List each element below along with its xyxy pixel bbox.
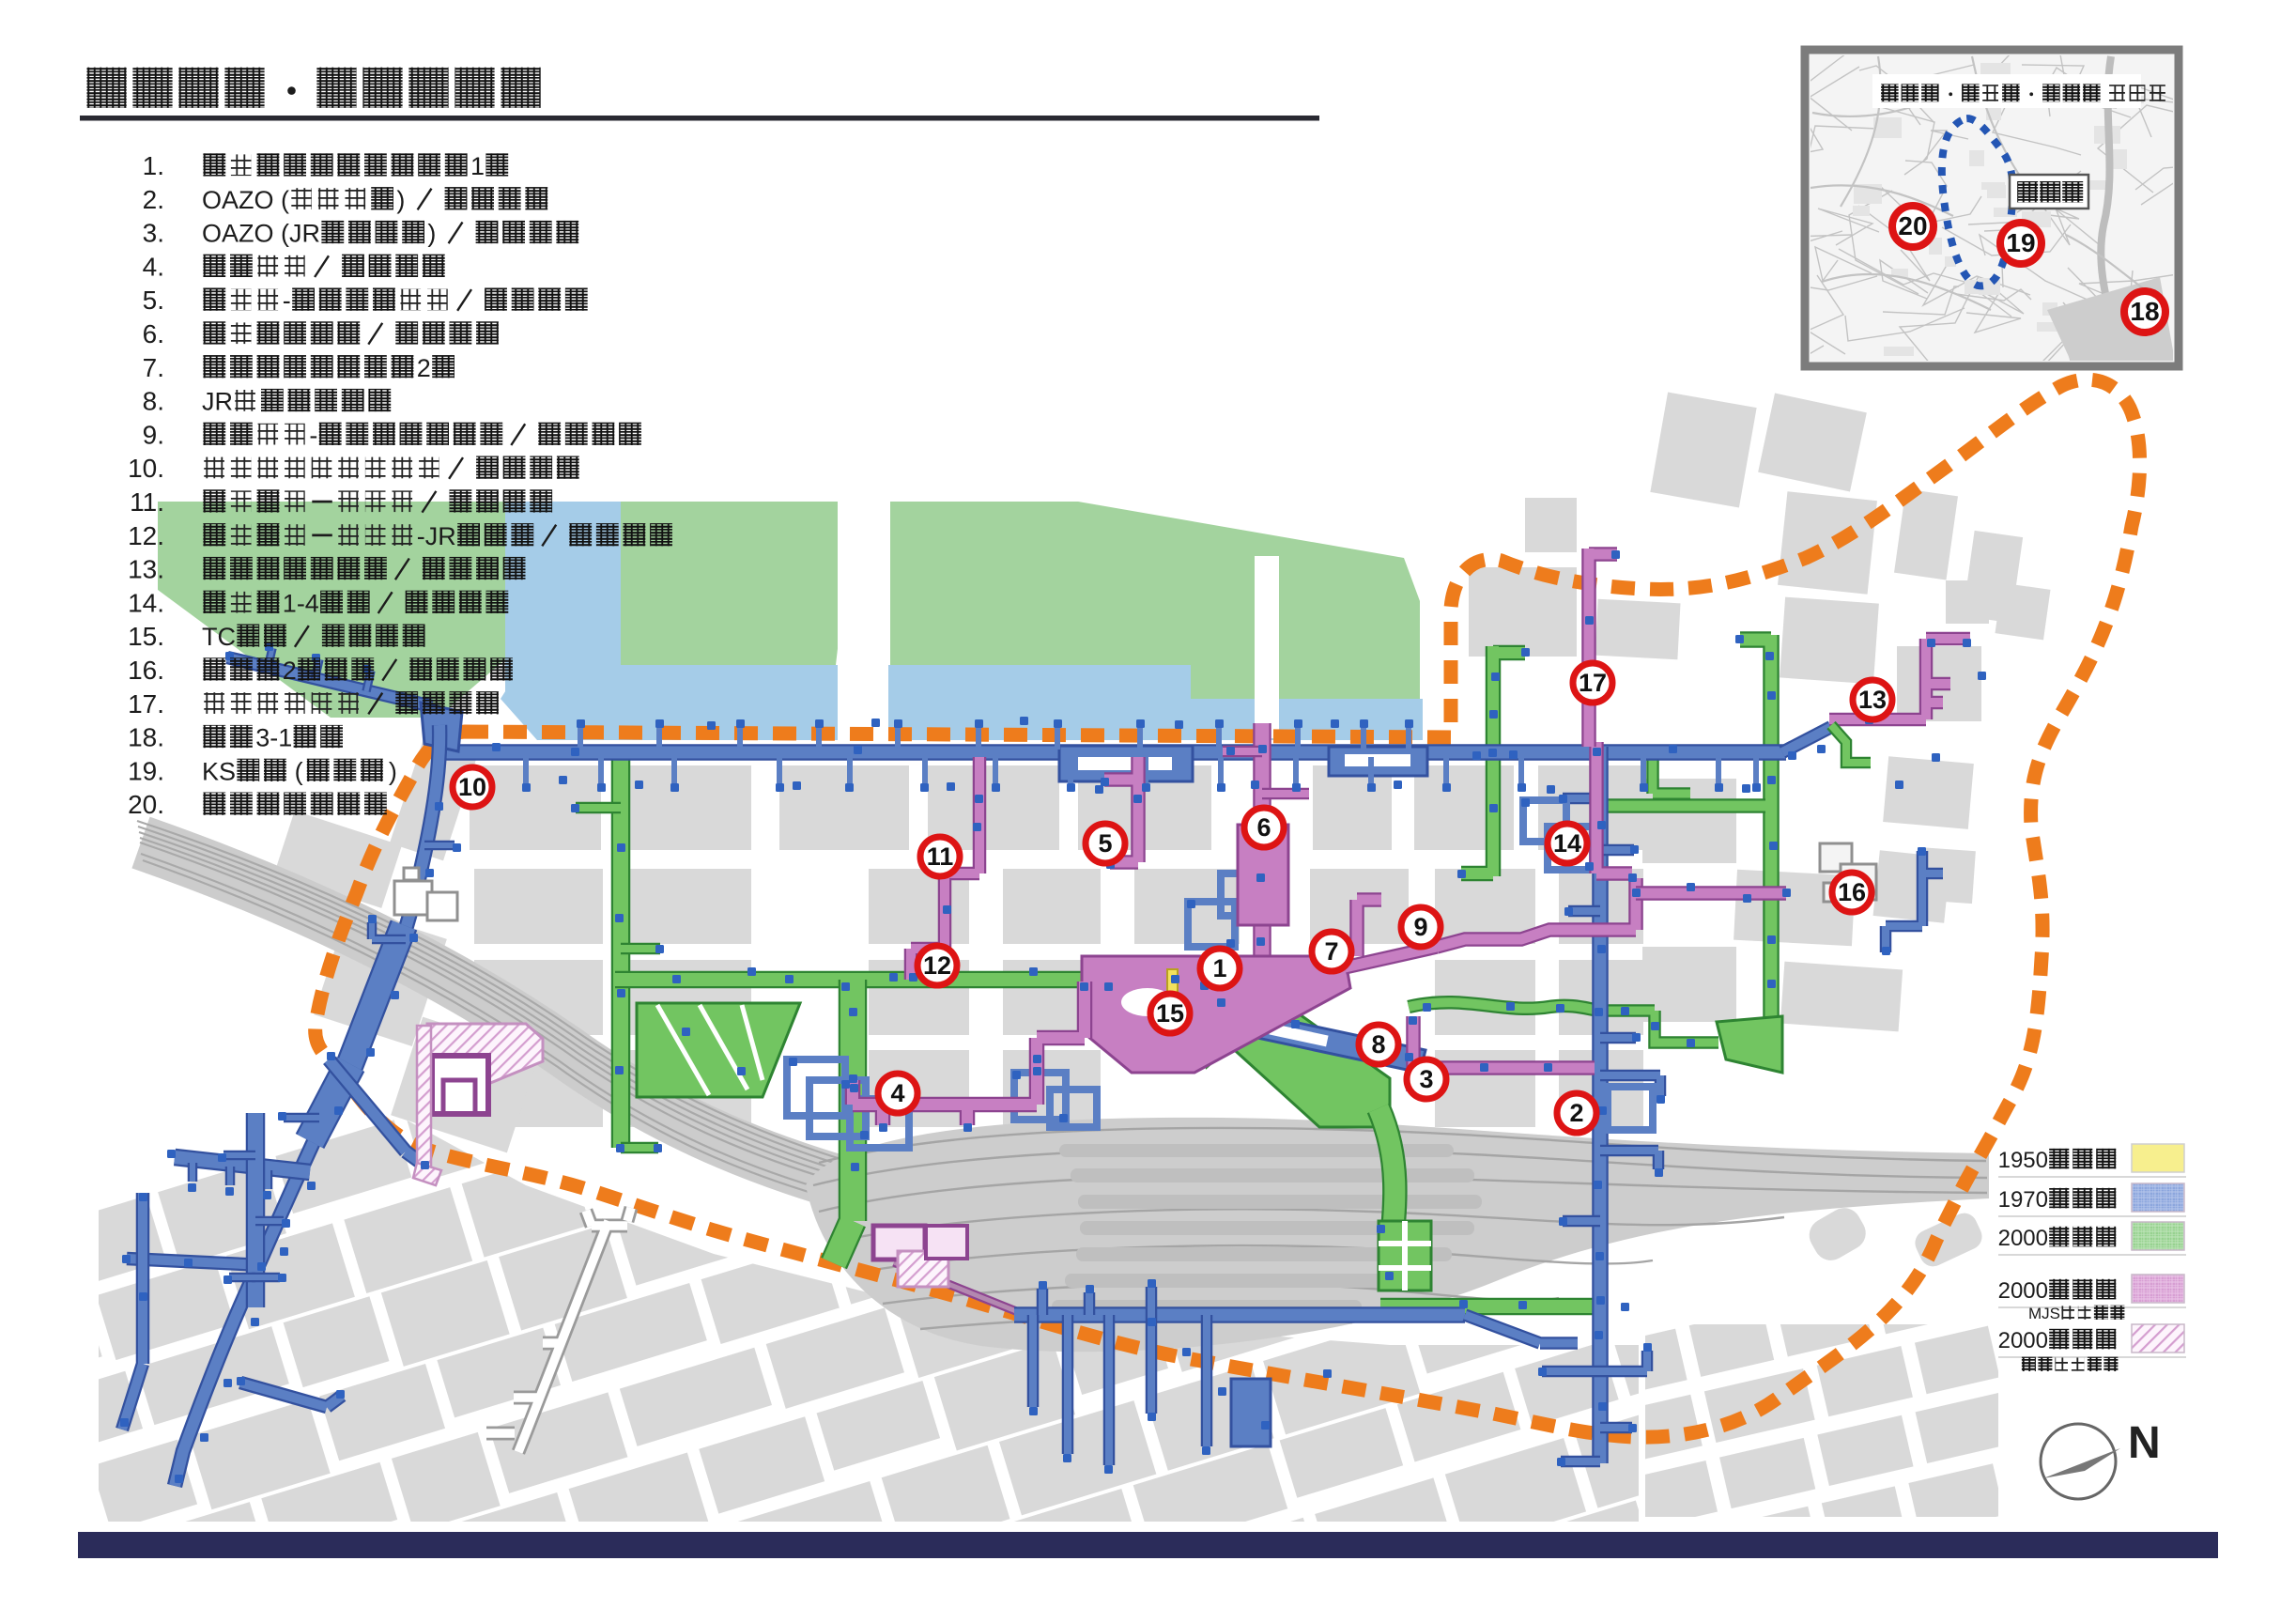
svg-text:4.: 4.	[143, 252, 164, 281]
svg-text:5.: 5.	[143, 286, 164, 315]
svg-text:13: 13	[1858, 686, 1887, 714]
svg-text:1.: 1.	[143, 151, 164, 180]
svg-text:4: 4	[890, 1079, 904, 1107]
svg-text:2: 2	[1569, 1099, 1583, 1127]
svg-text:-: -	[309, 421, 317, 449]
svg-text:1-4: 1-4	[283, 589, 319, 617]
svg-text:14: 14	[1553, 829, 1581, 858]
svg-text:14.: 14.	[128, 588, 164, 617]
svg-text:-: -	[283, 286, 291, 315]
svg-text:9.: 9.	[143, 420, 164, 449]
svg-text:1: 1	[470, 152, 485, 180]
svg-text:9: 9	[1413, 913, 1427, 941]
svg-text:JR: JR	[202, 388, 233, 416]
svg-text:2.: 2.	[143, 185, 164, 214]
svg-text:): )	[396, 186, 405, 214]
svg-text:8: 8	[1371, 1030, 1385, 1059]
svg-text:13.: 13.	[128, 555, 164, 584]
svg-text:16.: 16.	[128, 656, 164, 685]
svg-text:16: 16	[1838, 878, 1866, 906]
svg-text:11.: 11.	[130, 487, 164, 517]
svg-text:MJS: MJS	[2028, 1305, 2060, 1322]
svg-text:17: 17	[1579, 669, 1607, 697]
svg-text:10.: 10.	[128, 454, 164, 483]
svg-text:17.: 17.	[128, 689, 164, 719]
svg-text:1: 1	[1212, 954, 1226, 982]
svg-text:20: 20	[1898, 211, 1927, 240]
svg-text:1970: 1970	[1998, 1187, 2048, 1213]
svg-text:3.: 3.	[143, 219, 164, 248]
svg-text:11: 11	[927, 842, 954, 871]
svg-text:6: 6	[1256, 813, 1271, 842]
svg-text:20.: 20.	[128, 790, 164, 819]
svg-text:2: 2	[283, 657, 297, 685]
svg-text:7: 7	[1324, 937, 1338, 966]
svg-text:3: 3	[1419, 1065, 1433, 1093]
svg-text:TC: TC	[202, 623, 236, 651]
svg-text:N: N	[2128, 1418, 2161, 1468]
svg-text:KS: KS	[202, 757, 236, 785]
svg-text:): )	[389, 757, 397, 785]
svg-text:15: 15	[1156, 999, 1184, 1028]
svg-text:2000: 2000	[1998, 1278, 2048, 1304]
svg-text:): )	[427, 220, 436, 248]
svg-text:12: 12	[923, 951, 951, 980]
svg-text:5: 5	[1098, 829, 1112, 858]
svg-text:12.: 12.	[128, 521, 164, 550]
svg-text:1950: 1950	[1998, 1148, 2048, 1173]
svg-text:7.: 7.	[143, 353, 164, 382]
svg-text:15.: 15.	[128, 622, 164, 651]
svg-text:8.: 8.	[143, 387, 164, 416]
svg-text:18.: 18.	[128, 723, 164, 752]
svg-text:3-1: 3-1	[255, 724, 292, 752]
svg-text:(: (	[295, 757, 303, 785]
svg-text:6.: 6.	[143, 319, 164, 348]
svg-text:10: 10	[458, 773, 486, 801]
svg-text:OAZO (: OAZO (	[202, 186, 289, 214]
svg-text:19: 19	[2006, 228, 2035, 257]
svg-text:2000: 2000	[1998, 1226, 2048, 1251]
svg-text:-JR: -JR	[417, 522, 456, 550]
svg-text:19.: 19.	[128, 756, 164, 785]
svg-text:OAZO (JR: OAZO (JR	[202, 220, 320, 248]
svg-text:2: 2	[417, 354, 431, 382]
svg-text:2000: 2000	[1998, 1328, 2048, 1353]
svg-text:18: 18	[2130, 297, 2159, 326]
